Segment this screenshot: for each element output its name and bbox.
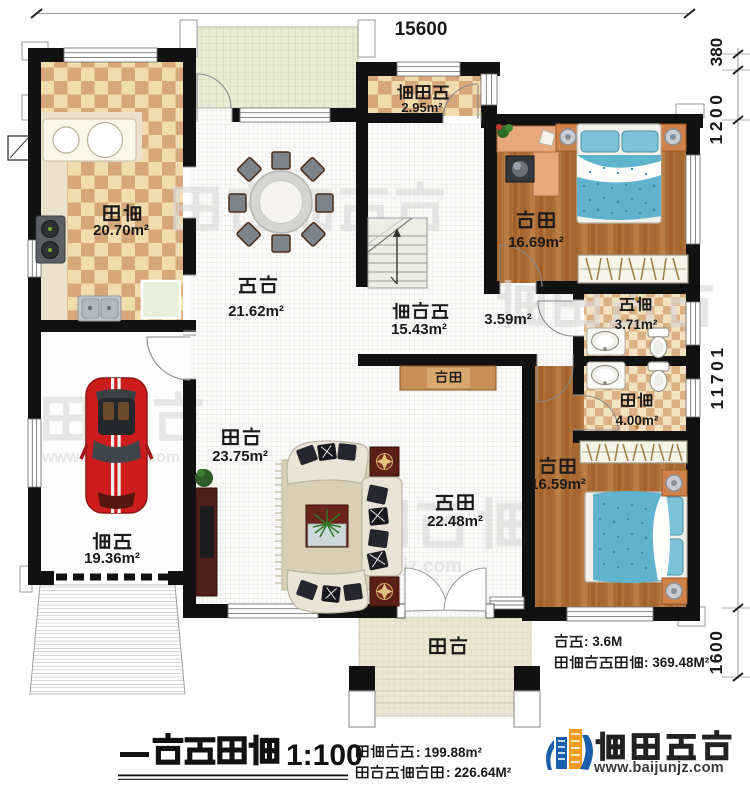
svg-text:380: 380 xyxy=(707,38,726,66)
svg-text:15.43m²: 15.43m² xyxy=(391,321,447,338)
svg-text:: 199.88m²: : 199.88m² xyxy=(416,745,483,760)
svg-text:23.75m²: 23.75m² xyxy=(212,448,268,465)
svg-text:www.baijunjz.com: www.baijunjz.com xyxy=(593,760,724,776)
svg-text:: 369.48M²: : 369.48M² xyxy=(644,655,710,670)
svg-text:1:100: 1:100 xyxy=(286,739,363,772)
svg-text:15600: 15600 xyxy=(395,19,448,40)
svg-text:1200: 1200 xyxy=(706,92,726,145)
svg-text:11701: 11701 xyxy=(707,344,727,409)
svg-text:16.59m²: 16.59m² xyxy=(530,476,586,493)
svg-text:4.00m²: 4.00m² xyxy=(616,413,659,428)
svg-text:3.71m²: 3.71m² xyxy=(615,317,658,332)
svg-text:16.69m²: 16.69m² xyxy=(508,234,564,251)
svg-text:19.36m²: 19.36m² xyxy=(84,550,140,567)
svg-text:2.95m²: 2.95m² xyxy=(401,100,443,115)
svg-text:3.59m²: 3.59m² xyxy=(484,311,532,328)
svg-text:: 3.6M: : 3.6M xyxy=(584,634,622,649)
svg-text:22.48m²: 22.48m² xyxy=(427,513,483,530)
svg-text:21.62m²: 21.62m² xyxy=(228,303,284,320)
svg-text:20.70m²: 20.70m² xyxy=(93,222,149,239)
svg-text:: 226.64M²: : 226.64M² xyxy=(446,765,512,780)
